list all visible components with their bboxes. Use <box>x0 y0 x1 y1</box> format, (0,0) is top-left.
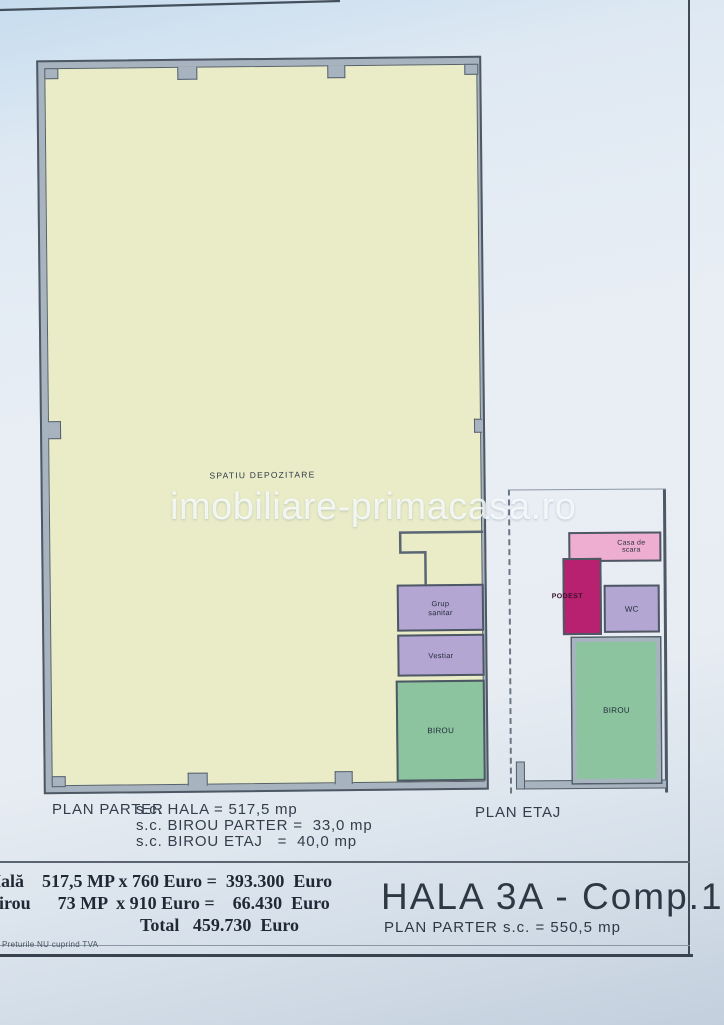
room-label: Casa de scara <box>611 540 651 554</box>
column-notch <box>327 65 345 78</box>
room-podest: PODEST <box>562 558 602 635</box>
room-label: Vestiar <box>428 651 453 660</box>
price-line-birou: Birou 73 MP x 910 Euro = 66.430 Euro <box>0 893 330 914</box>
storage-space-label: SPATIU DEPOZITARE <box>209 469 315 480</box>
corner-pilaster <box>464 63 478 74</box>
room-label: PODEST <box>552 593 583 600</box>
room-label: BIROU <box>427 726 454 735</box>
frame-bottom-line-thick <box>0 954 693 957</box>
room-wc: WC <box>604 584 660 632</box>
room-label: WC <box>625 604 639 613</box>
area-hala: s.c. HALA = 517,5 mp <box>136 801 298 818</box>
plan-etaj-drawing: Casa de scara PODEST WC BIROU <box>508 488 668 793</box>
vat-note: Preturile NU cuprind TVA <box>2 940 98 949</box>
sheet-subtitle: PLAN PARTER s.c. = 550,5 mp <box>384 919 621 936</box>
column-notch <box>473 419 481 433</box>
frame-divider-line <box>0 861 690 863</box>
room-birou-parter: BIROU <box>396 680 486 782</box>
price-line-hala: Hală 517,5 MP x 760 Euro = 393.300 Euro <box>0 871 332 892</box>
plan-parter-drawing: SPATIU DEPOZITARE Grup sanitar Vestiar B… <box>36 56 489 795</box>
watermark-text: imobiliare-primacasa.ro <box>170 486 576 529</box>
scanned-floorplan-page: SPATIU DEPOZITARE Grup sanitar Vestiar B… <box>0 0 724 1025</box>
column-notch <box>335 771 353 784</box>
frame-top-line <box>0 0 420 14</box>
entry-partition-lines <box>390 520 486 591</box>
hall-interior: SPATIU DEPOZITARE Grup sanitar Vestiar B… <box>44 64 484 786</box>
column-notch <box>47 421 60 439</box>
frame-bottom-line-thin <box>0 945 690 946</box>
room-vestiar: Vestiar <box>397 634 484 677</box>
area-birou-etaj: s.c. BIROU ETAJ = 40,0 mp <box>136 833 357 850</box>
room-birou-etaj: BIROU <box>572 637 661 783</box>
room-grup-sanitar: Grup sanitar <box>397 584 484 632</box>
column-notch <box>177 66 197 79</box>
corner-pilaster <box>51 776 65 787</box>
etaj-right-wall <box>663 489 668 792</box>
frame-right-line <box>688 0 690 957</box>
corner-pilaster <box>44 68 58 79</box>
plan-etaj-caption: PLAN ETAJ <box>475 804 561 821</box>
price-line-total: Total 459.730 Euro <box>140 915 299 936</box>
column-notch <box>188 772 208 785</box>
sheet-title: HALA 3A - Comp.1 <box>381 876 724 918</box>
room-label: BIROU <box>603 706 630 715</box>
etaj-wall-elbow <box>516 761 525 789</box>
room-label: Grup sanitar <box>424 598 456 616</box>
area-birou-parter: s.c. BIROU PARTER = 33,0 mp <box>136 817 373 834</box>
